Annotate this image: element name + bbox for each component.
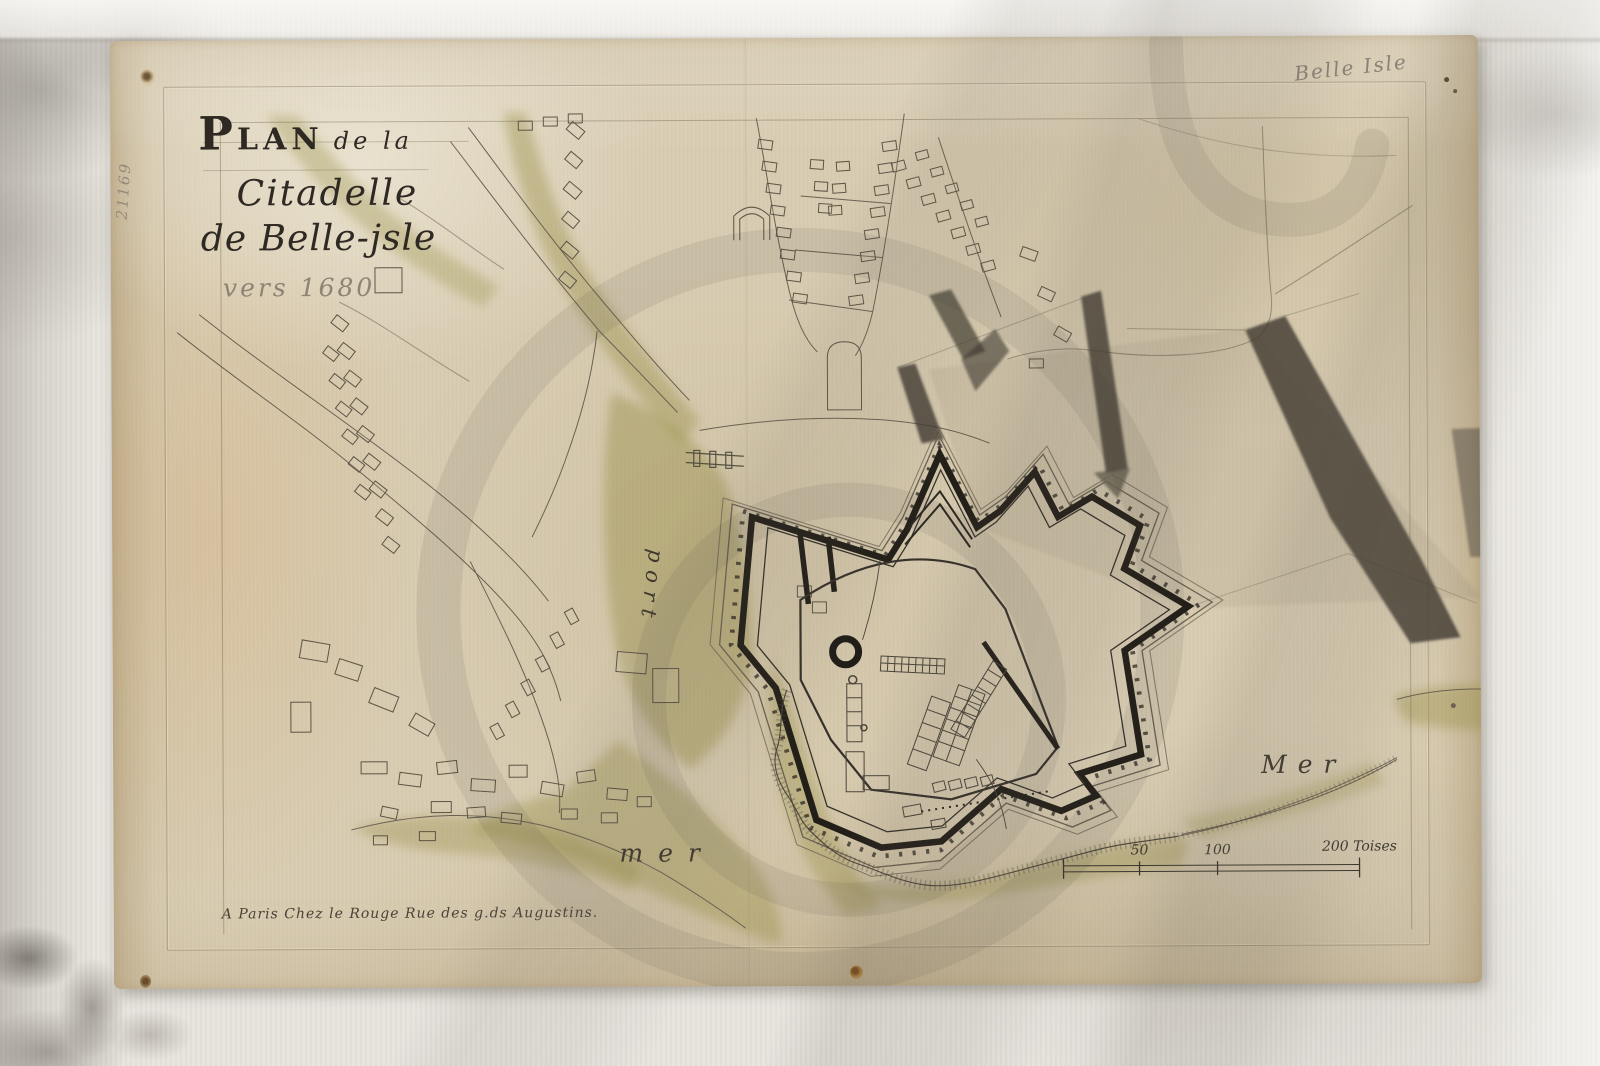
title-word: LAN [237,122,324,157]
photo-scene: PLANde la Citadelle de Belle-jsle vers 1… [0,0,1600,1066]
map-title-date: vers 1680 [223,272,529,302]
publisher-imprint: A Paris Chez le Rouge Rue des g.ds Augus… [222,905,599,923]
title-subtitle: de la [334,127,413,155]
rusty-tack-bottom [850,966,863,979]
map-title-line2: Citadelle [237,172,529,214]
pin-hole-top-right-2 [1453,89,1457,93]
map-sheet: PLANde la Citadelle de Belle-jsle vers 1… [110,35,1482,989]
scale-tick-50: 50 [1117,842,1161,858]
map-title-line1: PLANde la [198,121,528,157]
pin-hole-mid-right [1451,703,1456,708]
title-cartouche: PLANde la Citadelle de Belle-jsle vers 1… [198,121,529,302]
scale-tick-100: 100 [1195,842,1239,858]
scale-tick-200: 200 Toises [1289,838,1429,855]
label-mer-right: Mer [1261,750,1346,779]
label-mer-bottom: mer [619,838,715,867]
stain-bottom-left [140,975,151,988]
pin-hole-top-right [1444,77,1449,82]
glacis-shadows [897,287,1482,646]
map-title-line3: de Belle-jsle [201,217,529,259]
title-initial: P [198,106,237,160]
pin-hole-top-left [140,69,155,86]
catalog-number: 21169 [113,161,135,220]
